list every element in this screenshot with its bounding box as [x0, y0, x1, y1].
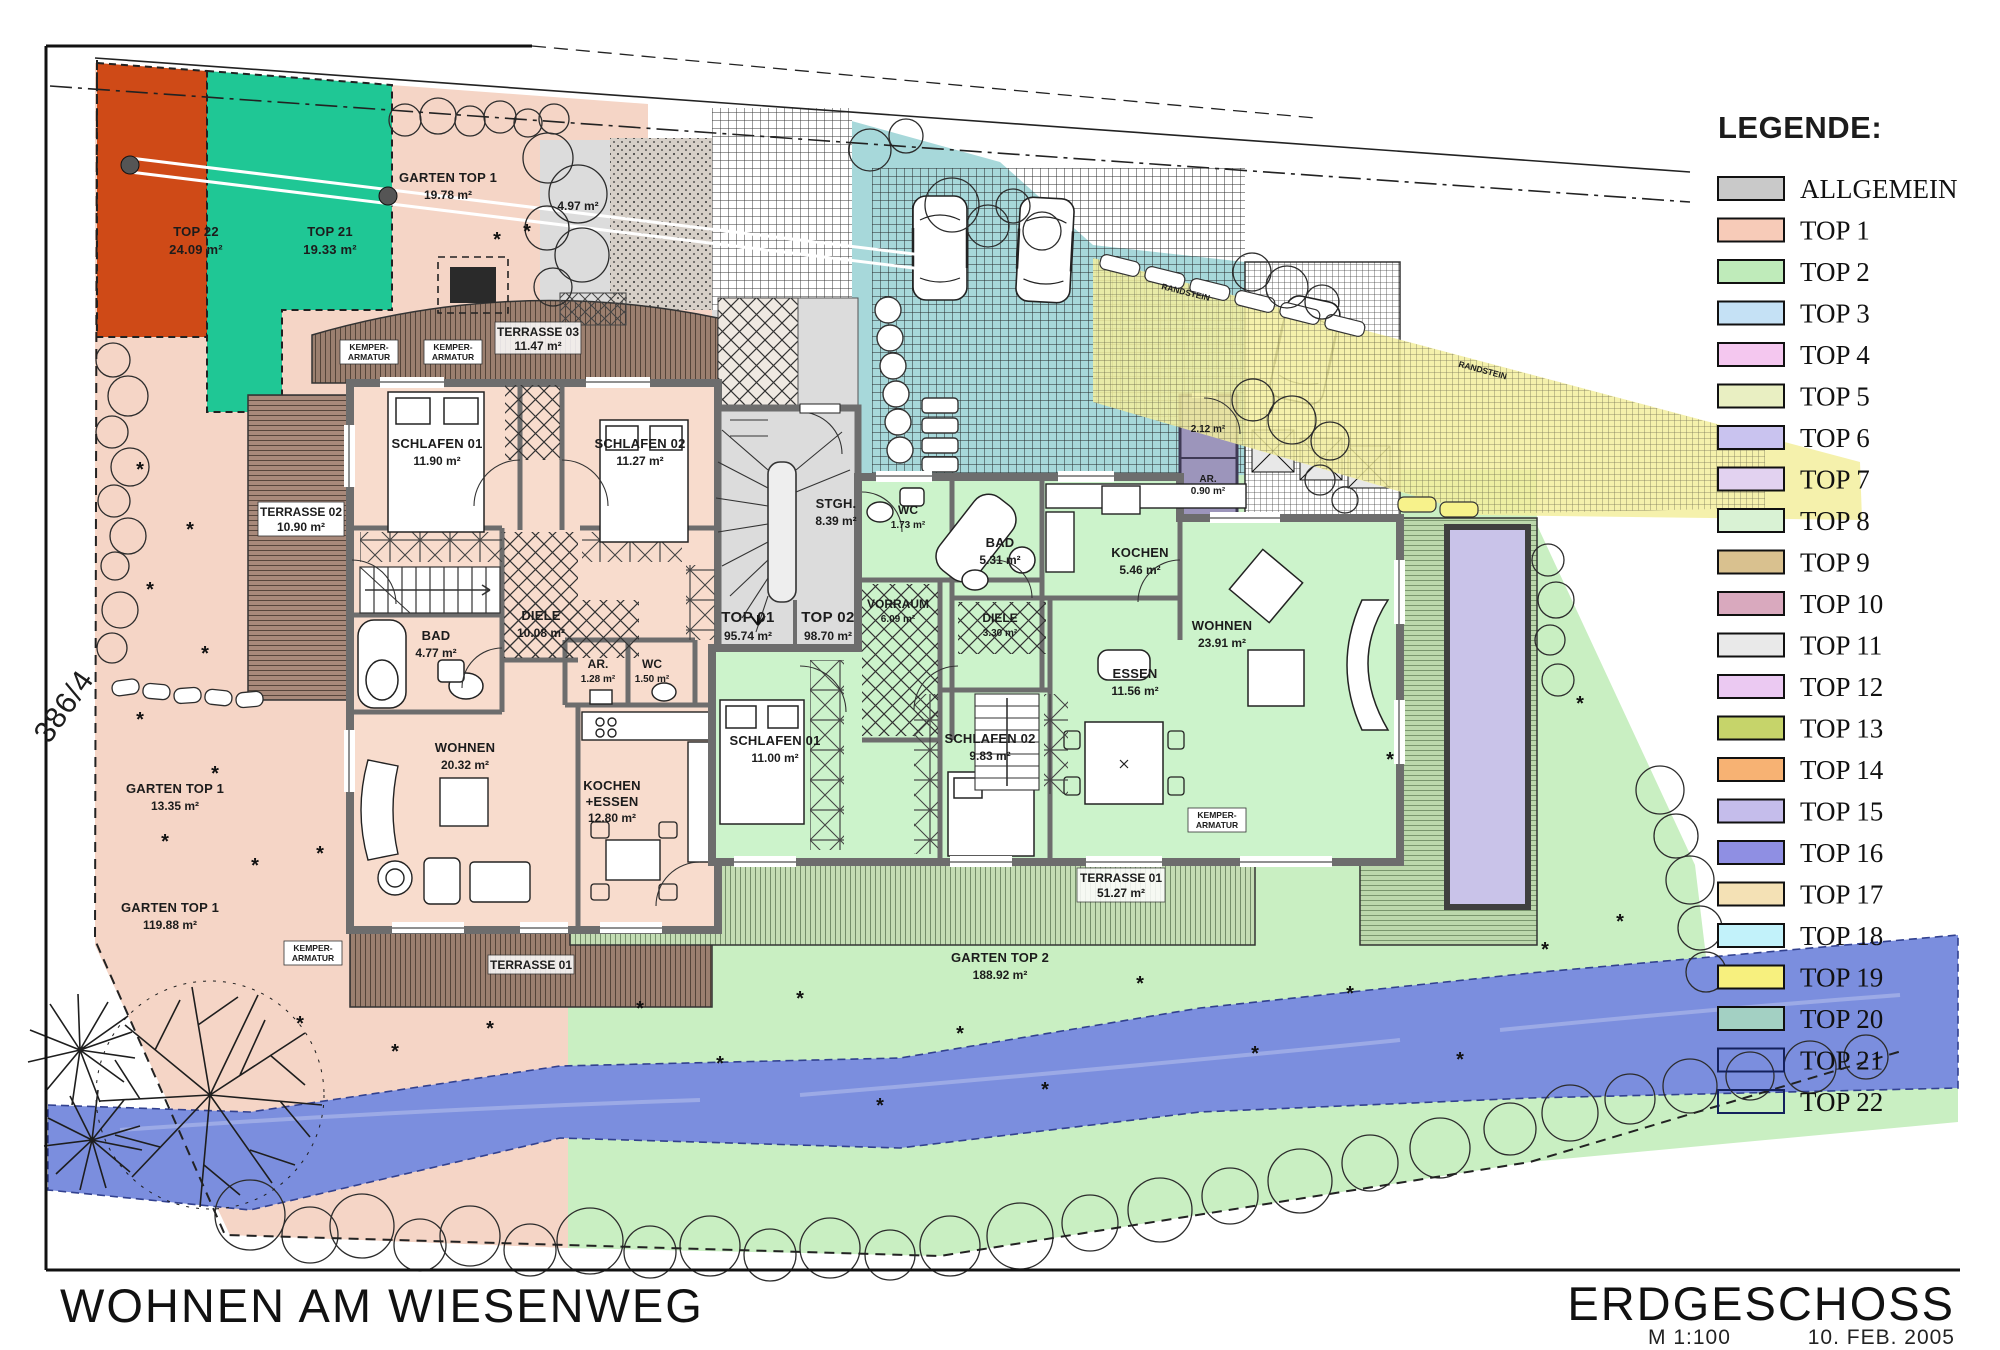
svg-text:95.74 m²: 95.74 m² [724, 629, 772, 643]
svg-text:*: * [251, 855, 259, 877]
svg-text:KEMPER-: KEMPER- [293, 943, 332, 953]
svg-text:*: * [1386, 749, 1394, 771]
closet [360, 532, 502, 562]
svg-text:*: * [186, 519, 194, 541]
legend-row: TOP 10 [1718, 589, 1883, 619]
entry-landing [798, 298, 858, 410]
unit-top02-label: TOP 02 [801, 609, 855, 626]
ar-allgemein-a: 2.12 m² [1191, 424, 1226, 435]
svg-text:ARMATUR: ARMATUR [292, 953, 334, 963]
svg-text:*: * [796, 988, 804, 1010]
kemper-armatur-label: KEMPER-ARMATUR [284, 941, 342, 965]
svg-text:11.56 m²: 11.56 m² [1111, 684, 1158, 698]
car-icon [913, 196, 967, 300]
svg-text:*: * [1136, 973, 1144, 995]
garten-top2: GARTEN TOP 2 [951, 950, 1049, 965]
svg-text:TOP 22: TOP 22 [1800, 1087, 1883, 1117]
top22-label: TOP 22 [173, 224, 219, 239]
svg-text:TOP 11: TOP 11 [1800, 631, 1882, 661]
svg-text:10.90 m²: 10.90 m² [277, 520, 325, 534]
svg-text:*: * [1346, 983, 1354, 1005]
svg-text:*: * [486, 1018, 494, 1040]
svg-text:TOP 14: TOP 14 [1800, 755, 1884, 785]
room-diele-top02: DIELE [982, 611, 1017, 625]
legend-row: TOP 1 [1718, 216, 1870, 246]
legend-row: TOP 18 [1718, 921, 1883, 951]
svg-text:*: * [161, 831, 169, 853]
svg-text:98.70 m²: 98.70 m² [804, 629, 852, 643]
legend-row: TOP 11 [1718, 631, 1882, 661]
svg-text:TOP 10: TOP 10 [1800, 589, 1883, 619]
svg-text:*: * [1541, 939, 1549, 961]
svg-text:9.83 m²: 9.83 m² [969, 749, 1010, 763]
svg-text:TOP 18: TOP 18 [1800, 921, 1883, 951]
svg-text:*: * [493, 229, 501, 251]
svg-text:1.28 m²: 1.28 m² [581, 674, 616, 685]
svg-text:13.35 m²: 13.35 m² [151, 799, 199, 813]
svg-text:*: * [876, 1095, 884, 1117]
closet [914, 694, 938, 854]
pool [1447, 527, 1528, 907]
room-wc-top01: WC [642, 657, 662, 671]
room-vorraum-top02: VORRAUM [867, 597, 929, 611]
room-kochen-top02: KOCHEN [1111, 545, 1169, 560]
room-schlafen2-top01: SCHLAFEN 02 [594, 436, 685, 451]
svg-text:*: * [1251, 1043, 1259, 1065]
legend-title: LEGENDE: [1718, 110, 1882, 145]
closet [1044, 694, 1068, 794]
room-schlafen2-top02: SCHLAFEN 02 [944, 731, 1035, 746]
svg-text:TERRASSE 02: TERRASSE 02 [260, 505, 342, 519]
svg-text:TOP 20: TOP 20 [1800, 1004, 1883, 1034]
kemper-armatur-label: KEMPER-ARMATUR [1188, 808, 1246, 832]
svg-text:119.88 m²: 119.88 m² [143, 918, 197, 932]
svg-text:*: * [1041, 1079, 1049, 1101]
svg-text:51.27 m²: 51.27 m² [1097, 886, 1145, 900]
svg-text:5.46 m²: 5.46 m² [1119, 563, 1160, 577]
entry-door [800, 404, 840, 413]
svg-text:*: * [523, 221, 531, 243]
svg-text:0.90 m²: 0.90 m² [1191, 486, 1226, 497]
room-bad-top01: BAD [422, 628, 451, 643]
svg-text:KEMPER-: KEMPER- [1197, 810, 1236, 820]
svg-text:*: * [956, 1023, 964, 1045]
room-essen-top02: ESSEN [1112, 666, 1157, 681]
svg-text:TOP 9: TOP 9 [1800, 548, 1870, 578]
svg-text:TOP 3: TOP 3 [1800, 299, 1870, 329]
svg-text:*: * [1616, 911, 1624, 933]
legend-row: TOP 15 [1718, 797, 1883, 827]
svg-text:TOP 8: TOP 8 [1800, 506, 1870, 536]
svg-text:188.92 m²: 188.92 m² [973, 968, 1028, 982]
svg-text:*: * [1456, 1049, 1464, 1071]
drawing-sheet: RANDSTEIN RANDSTEIN [0, 0, 2000, 1350]
svg-text:*: * [636, 998, 644, 1020]
svg-text:1.73 m²: 1.73 m² [891, 520, 926, 531]
project-title: WOHNEN AM WIESENWEG [60, 1279, 704, 1332]
svg-text:23.91 m²: 23.91 m² [1198, 636, 1246, 650]
svg-text:TOP 4: TOP 4 [1800, 340, 1870, 370]
sheet-title: ERDGESCHOSS [1567, 1277, 1955, 1330]
svg-text:6.09 m²: 6.09 m² [881, 614, 916, 625]
legend-row: TOP 13 [1718, 714, 1883, 744]
legend-row: TOP 5 [1718, 382, 1870, 412]
utility-pole-icon [379, 187, 397, 205]
svg-text:TOP 15: TOP 15 [1800, 797, 1883, 827]
legend-row: TOP 17 [1718, 880, 1883, 910]
scale-label: M 1:100 [1648, 1326, 1731, 1349]
utility-pole-icon [121, 156, 139, 174]
svg-text:*: * [136, 709, 144, 731]
pergola-roof [450, 267, 496, 303]
room-bad-top02: BAD [986, 535, 1015, 550]
top21-label: TOP 21 [307, 224, 353, 239]
legend-row: TOP 12 [1718, 672, 1883, 702]
legend-row: TOP 20 [1718, 1004, 1883, 1034]
svg-text:20.32 m²: 20.32 m² [441, 758, 489, 772]
garten-top1-c: GARTEN TOP 1 [121, 900, 219, 915]
svg-text:KEMPER-: KEMPER- [349, 342, 388, 352]
svg-text:19.78 m²: 19.78 m² [424, 188, 472, 202]
svg-text:11.00 m²: 11.00 m² [751, 751, 798, 765]
entry-area-label: 4.97 m² [557, 199, 598, 213]
terrasse-02-deck [248, 395, 350, 700]
svg-text:TOP 5: TOP 5 [1800, 382, 1870, 412]
room-diele-top01: DIELE [521, 608, 560, 623]
room-wohnen-top02: WOHNEN [1192, 618, 1252, 633]
svg-text:*: * [201, 643, 209, 665]
legend-row: TOP 19 [1718, 963, 1883, 993]
svg-text:*: * [716, 1053, 724, 1075]
room-wc-top02: WC [898, 503, 918, 517]
svg-text:*: * [296, 1013, 304, 1035]
room-ar-top01: AR. [588, 657, 609, 671]
closet [686, 565, 716, 640]
svg-text:TERRASSE 03: TERRASSE 03 [497, 325, 579, 339]
legend-row: TOP 4 [1718, 340, 1870, 370]
svg-text:*: * [1576, 693, 1584, 715]
svg-text:TOP 13: TOP 13 [1800, 714, 1883, 744]
terrasse01-top01-label: TERRASSE 01 [488, 955, 574, 974]
legend-row: TOP 14 [1718, 755, 1884, 785]
svg-text:TOP 1: TOP 1 [1800, 216, 1870, 246]
svg-text:4.77 m²: 4.77 m² [415, 646, 456, 660]
internal-stair [360, 567, 500, 613]
svg-text:12.80 m²: 12.80 m² [588, 811, 636, 825]
svg-text:*: * [391, 1041, 399, 1063]
svg-text:TOP 19: TOP 19 [1800, 963, 1883, 993]
svg-text:TOP 17: TOP 17 [1800, 880, 1883, 910]
svg-text:TOP 7: TOP 7 [1800, 465, 1870, 495]
svg-text:*: * [316, 843, 324, 865]
road-edge-2 [532, 46, 1315, 118]
svg-text:*: * [136, 459, 144, 481]
region-top22 [97, 63, 207, 337]
checker-patch [560, 293, 626, 325]
svg-text:11.27 m²: 11.27 m² [616, 454, 663, 468]
svg-text:TOP 16: TOP 16 [1800, 838, 1883, 868]
legend-row: ALLGEMEIN [1718, 174, 1957, 204]
legend-row: TOP 2 [1718, 257, 1870, 287]
unit-top01-label: TOP 01 [721, 609, 775, 626]
svg-text:5.31 m²: 5.31 m² [979, 553, 1020, 567]
legend-row: TOP 9 [1718, 548, 1870, 578]
svg-text:+ESSEN: +ESSEN [586, 794, 639, 809]
parcel-number: 386/4 [28, 664, 101, 749]
svg-text:ARMATUR: ARMATUR [348, 352, 390, 362]
ar-allgemein-b: AR. [1199, 474, 1216, 485]
svg-text:10.08 m²: 10.08 m² [517, 626, 565, 640]
svg-text:ARMATUR: ARMATUR [1196, 820, 1238, 830]
kemper-armatur-label: KEMPER-ARMATUR [424, 340, 482, 364]
room-schlafen1-top01: SCHLAFEN 01 [391, 436, 482, 451]
terrasse01-top02-label: TERRASSE 01 51.27 m² [1077, 868, 1165, 902]
svg-text:3.30 m²: 3.30 m² [983, 628, 1018, 639]
svg-text:ALLGEMEIN: ALLGEMEIN [1800, 174, 1957, 204]
svg-text:8.39 m²: 8.39 m² [815, 514, 856, 528]
garten-top1-a: GARTEN TOP 1 [399, 170, 497, 185]
svg-text:TOP 21: TOP 21 [1800, 1046, 1883, 1076]
room-wohnen-top01: WOHNEN [435, 740, 495, 755]
svg-text:TOP 12: TOP 12 [1800, 672, 1883, 702]
entry-niche-tiles [505, 385, 560, 460]
room-kochen-top01: KOCHEN [583, 778, 641, 793]
garten-top1-b: GARTEN TOP 1 [126, 781, 224, 796]
entry-path-hatch [718, 298, 798, 410]
legend-row: TOP 3 [1718, 299, 1870, 329]
room-stgh: STGH. [816, 496, 857, 511]
svg-text:11.47 m²: 11.47 m² [514, 339, 561, 353]
svg-text:KEMPER-: KEMPER- [433, 342, 472, 352]
title-block: WOHNEN AM WIESENWEG ERDGESCHOSS M 1:100 … [60, 1277, 1955, 1349]
closet [810, 660, 844, 850]
terrasse03-label: TERRASSE 03 11.47 m² [495, 322, 581, 354]
svg-text:TOP 6: TOP 6 [1800, 423, 1870, 453]
room-schlafen1-top02: SCHLAFEN 01 [729, 733, 820, 748]
kemper-armatur-label: KEMPER-ARMATUR [340, 340, 398, 364]
svg-text:1.50 m²: 1.50 m² [635, 674, 670, 685]
terrasse02-label: TERRASSE 02 10.90 m² [258, 502, 344, 536]
svg-text:11.90 m²: 11.90 m² [413, 454, 460, 468]
svg-text:19.33 m²: 19.33 m² [303, 242, 357, 257]
svg-text:TERRASSE 01: TERRASSE 01 [1080, 871, 1162, 885]
svg-text:TERRASSE 01: TERRASSE 01 [490, 958, 572, 972]
svg-text:24.09 m²: 24.09 m² [169, 242, 223, 257]
svg-text:386/4: 386/4 [28, 664, 101, 749]
svg-text:*: * [146, 579, 154, 601]
legend-row: TOP 16 [1718, 838, 1883, 868]
svg-text:TOP 2: TOP 2 [1800, 257, 1870, 287]
spiky-shrub [28, 994, 135, 1105]
floor-plan-svg: RANDSTEIN RANDSTEIN [0, 0, 2000, 1350]
date-label: 10. FEB. 2005 [1808, 1326, 1955, 1349]
svg-text:ARMATUR: ARMATUR [432, 352, 474, 362]
